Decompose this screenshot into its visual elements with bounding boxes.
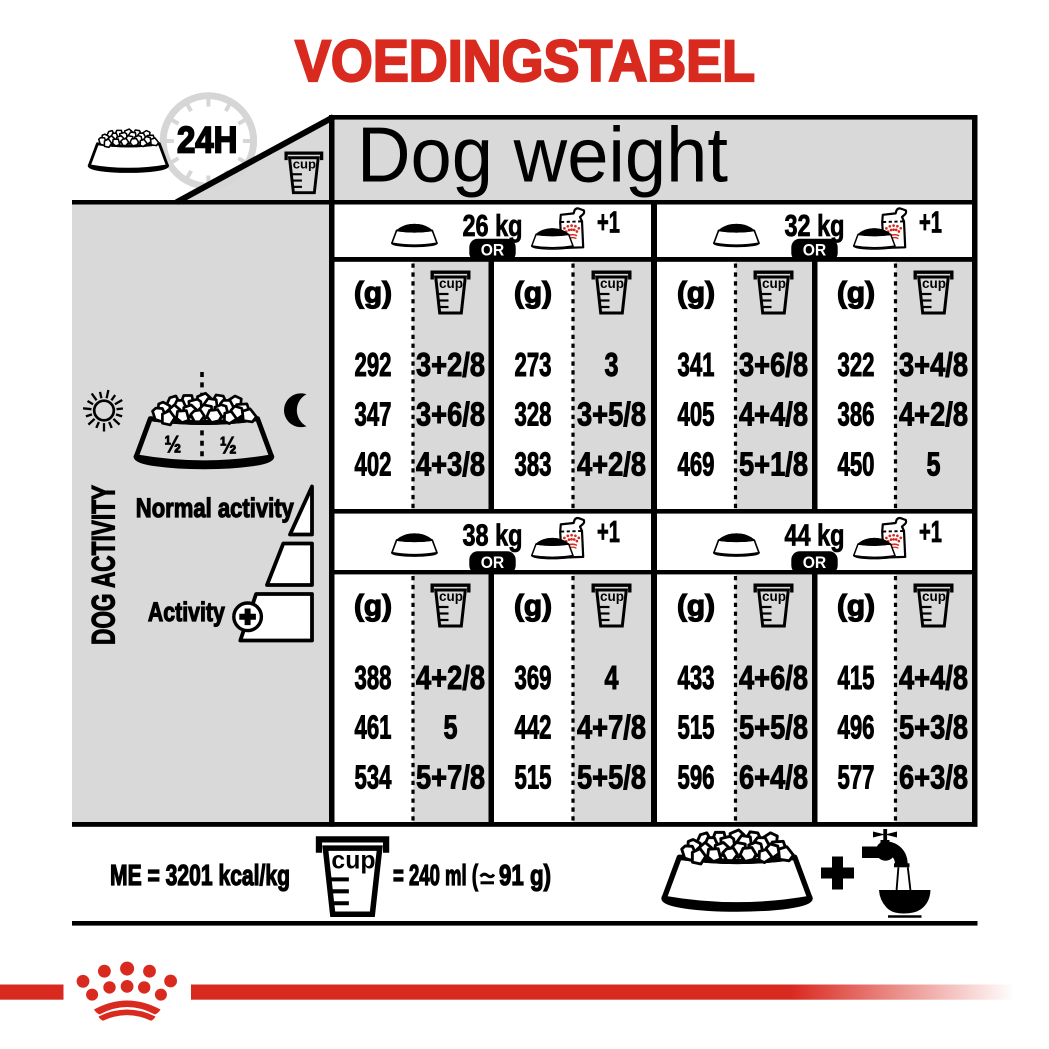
svg-text:461: 461 — [355, 709, 392, 746]
svg-text:+1: +1 — [919, 514, 942, 549]
svg-text:6+3/8: 6+3/8 — [899, 759, 968, 796]
svg-text:Dog weight: Dog weight — [357, 111, 728, 199]
svg-text:(g): (g) — [514, 277, 552, 310]
svg-text:DOG ACTIVITY: DOG ACTIVITY — [86, 485, 122, 645]
svg-text:383: 383 — [515, 446, 552, 483]
svg-text:450: 450 — [838, 446, 875, 483]
svg-text:5: 5 — [927, 446, 941, 483]
svg-text:4+2/8: 4+2/8 — [416, 659, 485, 696]
svg-text:515: 515 — [515, 759, 552, 796]
svg-text:596: 596 — [678, 759, 715, 796]
svg-text:388: 388 — [355, 659, 392, 696]
svg-text:VOEDINGSTABEL: VOEDINGSTABEL — [295, 29, 755, 94]
svg-text:32 kg: 32 kg — [785, 208, 845, 243]
svg-text:4+4/8: 4+4/8 — [739, 396, 808, 433]
svg-text:(g): (g) — [354, 277, 392, 310]
svg-text:469: 469 — [678, 446, 715, 483]
svg-text:369: 369 — [515, 659, 552, 696]
svg-text:(g): (g) — [354, 590, 392, 623]
svg-text:5+5/8: 5+5/8 — [739, 709, 808, 746]
svg-text:5+7/8: 5+7/8 — [416, 759, 485, 796]
svg-text:91 g): 91 g) — [499, 860, 551, 892]
svg-text:328: 328 — [515, 396, 552, 433]
svg-text:5: 5 — [444, 709, 458, 746]
svg-text:(g): (g) — [837, 590, 875, 623]
svg-text:415: 415 — [838, 659, 875, 696]
svg-text:(g): (g) — [677, 590, 715, 623]
svg-text:(g): (g) — [514, 590, 552, 623]
svg-text:496: 496 — [838, 709, 875, 746]
svg-text:½: ½ — [220, 433, 237, 460]
svg-text:3+5/8: 3+5/8 — [577, 396, 646, 433]
svg-text:577: 577 — [838, 759, 875, 796]
svg-text:+1: +1 — [919, 204, 942, 239]
svg-text:OR: OR — [481, 242, 505, 260]
svg-text:44 kg: 44 kg — [785, 518, 845, 553]
svg-text:OR: OR — [803, 242, 827, 260]
svg-text:Activity: Activity — [148, 597, 225, 627]
svg-text:273: 273 — [515, 346, 552, 383]
svg-text:½: ½ — [164, 432, 181, 459]
svg-text:4+7/8: 4+7/8 — [577, 709, 646, 746]
svg-text:386: 386 — [838, 396, 875, 433]
svg-text:Normal activity: Normal activity — [136, 493, 294, 523]
svg-text:534: 534 — [355, 759, 392, 796]
svg-text:OR: OR — [481, 554, 505, 572]
svg-text:442: 442 — [515, 709, 552, 746]
svg-text:322: 322 — [838, 346, 875, 383]
svg-text:5+5/8: 5+5/8 — [577, 759, 646, 796]
svg-text:(g): (g) — [677, 277, 715, 310]
svg-text:402: 402 — [355, 446, 392, 483]
svg-text:6+4/8: 6+4/8 — [739, 759, 808, 796]
svg-text:4+2/8: 4+2/8 — [899, 396, 968, 433]
svg-text:4: 4 — [605, 659, 619, 696]
svg-text:ME = 3201 kcal/kg: ME = 3201 kcal/kg — [110, 860, 290, 892]
svg-text:405: 405 — [678, 396, 715, 433]
svg-text:515: 515 — [678, 709, 715, 746]
svg-text:+1: +1 — [597, 204, 620, 239]
svg-text:OR: OR — [803, 554, 827, 572]
svg-text:4+2/8: 4+2/8 — [577, 446, 646, 483]
svg-text:3+2/8: 3+2/8 — [416, 346, 485, 383]
svg-text:4+4/8: 4+4/8 — [899, 659, 968, 696]
svg-text:3+6/8: 3+6/8 — [416, 396, 485, 433]
svg-text:292: 292 — [355, 346, 392, 383]
svg-text:433: 433 — [678, 659, 715, 696]
svg-text:4+6/8: 4+6/8 — [739, 659, 808, 696]
svg-text:26 kg: 26 kg — [463, 208, 523, 243]
svg-text:24H: 24H — [177, 120, 238, 161]
svg-text:(g): (g) — [837, 277, 875, 310]
svg-text:38 kg: 38 kg — [463, 518, 523, 553]
svg-text:3: 3 — [605, 346, 619, 383]
svg-text:5+3/8: 5+3/8 — [899, 709, 968, 746]
svg-text:= 240 ml (: = 240 ml ( — [393, 860, 478, 892]
svg-text:+1: +1 — [597, 514, 620, 549]
svg-text:347: 347 — [355, 396, 392, 433]
svg-text:3+4/8: 3+4/8 — [899, 346, 968, 383]
svg-text:341: 341 — [678, 346, 715, 383]
svg-text:3+6/8: 3+6/8 — [739, 346, 808, 383]
svg-text:5+1/8: 5+1/8 — [739, 446, 808, 483]
svg-text:4+3/8: 4+3/8 — [416, 446, 485, 483]
